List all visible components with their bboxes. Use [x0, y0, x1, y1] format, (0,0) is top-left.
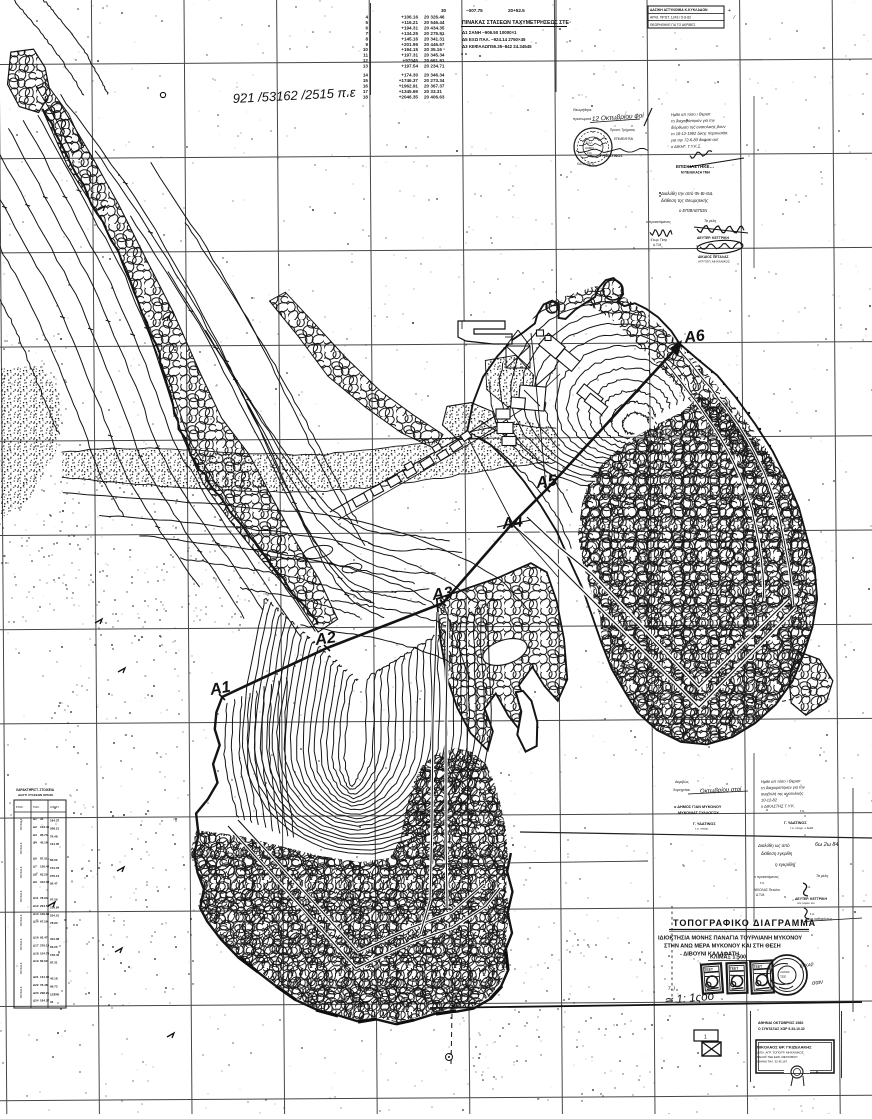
svg-text:ΑΘΗΝΑΙ ΟΚΤΩΒΡΙΟΣ 1982: ΑΘΗΝΑΙ ΟΚΤΩΒΡΙΟΣ 1982 [758, 1021, 803, 1025]
svg-text:12: 12 [363, 58, 369, 63]
svg-text:ΤΕΕΤ: ΤΕΕΤ [730, 966, 740, 970]
svg-text:+1746.37: +1746.37 [399, 78, 419, 83]
svg-text:ΣΤΗΝ ΑΝΩ ΜΕΡΑ ΜΥΚΟΝΟΥ ΚΑΙ: ΣΤΗΝ ΑΝΩ ΜΕΡΑ ΜΥΚΟΝΟΥ ΚΑΙ ΣΤΗ ΘΕΣΗ [664, 944, 781, 950]
svg-text:20 273.34: 20 273.34 [424, 78, 445, 83]
svg-text:ΤΕΕΤ: ΤΕΕΤ [753, 964, 763, 968]
svg-text:Δ6: Δ6 [33, 857, 37, 861]
svg-text:Δ16: Δ16 [33, 936, 39, 940]
svg-text:Τα μέλη: Τα μέλη [816, 874, 828, 878]
svg-text:ΕΛΛ: ΕΛΛ [586, 141, 593, 145]
svg-text:διόρθωση της ανατολικής βουν: διόρθωση της ανατολικής βουν [671, 124, 726, 130]
svg-text:34: 34 [40, 817, 44, 821]
svg-text:Μ ΠΕΛΕΚΑΣΗ ΤΜΗ: Μ ΠΕΛΕΚΑΣΗ ΤΜΗ [681, 171, 711, 175]
svg-text:διάθεση εγκρίθη: διάθεση εγκρίθη [761, 851, 793, 856]
svg-text:ΤΕΕ: ΤΕΕ [780, 975, 786, 979]
svg-text:ΟΡΙΑ Δ.Σ.: ΟΡΙΑ Δ.Σ. [19, 961, 23, 974]
svg-text:ΟΡΙΑ Δ.Σ.: ΟΡΙΑ Δ.Σ. [19, 841, 23, 854]
svg-text:20 661.91: 20 661.91 [424, 58, 445, 63]
svg-text:9: 9 [365, 42, 368, 47]
svg-text:ΔΙΚΑΙΟΣ ΠΕΤΑΛΑΣ: ΔΙΚΑΙΟΣ ΠΕΤΑΛΑΣ [698, 255, 729, 259]
svg-text:63.25: 63.25 [50, 945, 58, 949]
svg-text:87.31: 87.31 [50, 961, 58, 965]
svg-text:20+52.5: 20+52.5 [508, 8, 525, 13]
svg-text:τη διαχειρίστηκαν για την: τη διαχειρίστηκαν για την [671, 118, 715, 124]
svg-text:96.73: 96.73 [40, 833, 48, 837]
svg-text:20 434.35: 20 434.35 [424, 25, 445, 30]
svg-text:ΣΙΑ: ΣΙΑ [587, 151, 592, 155]
svg-text:15: 15 [363, 78, 369, 83]
svg-text:ο ΔΗΜΟΣ ΓΙΑΝ ΜΥΚΟΝΟΥ: ο ΔΗΜΟΣ ΓΙΑΝ ΜΥΚΟΝΟΥ [674, 805, 722, 809]
svg-text:16: 16 [363, 83, 369, 88]
svg-text:+2046.35: +2046.35 [399, 94, 419, 99]
svg-text:10: 10 [363, 47, 369, 52]
svg-text:34: 34 [50, 1000, 54, 1004]
svg-text:20 446.67: 20 446.67 [424, 42, 445, 47]
svg-text:Ο ΣΥΝΤΑΞΑΣ ΧΩΡ 5.33-10.32: Ο ΣΥΝΤΑΞΑΣ ΧΩΡ 5.33-10.32 [758, 1027, 805, 1031]
svg-text:ΕΠΙΜΕΛΗΤΑΙ: ΕΠΙΜΕΛΗΤΑΙ [614, 137, 633, 141]
svg-text:Τα μέλη: Τα μέλη [704, 219, 716, 223]
svg-text:78.93: 78.93 [50, 921, 58, 925]
svg-text:83.62: 83.62 [50, 858, 58, 862]
svg-text:96.73: 96.73 [50, 984, 58, 988]
svg-text:ο ΕΠΙΒΛΕΠΩΝ: ο ΕΠΙΒΛΕΠΩΝ [679, 208, 708, 213]
svg-text:ΕΠΙΣΚΙΑΣΤΗΚΕ…: ΕΠΙΣΚΙΑΣΤΗΚΕ… [676, 164, 715, 169]
svg-text:6: 6 [365, 25, 368, 30]
svg-text:Χορηγείται: Χορηγείται [673, 788, 690, 792]
svg-text:για την 72-6-83 δικάσει αυτ: για την 72-6-83 δικάσει αυτ [671, 137, 719, 143]
svg-text:ΔΑΣΙΚΗ ΑΣΤΥΝΟΜΙΑ Κ.ΚΥΚΛΑΔΩΝ: ΔΑΣΙΚΗ ΑΣΤΥΝΟΜΙΑ Κ.ΚΥΚΛΑΔΩΝ [650, 8, 708, 12]
svg-text:298.21: 298.21 [40, 991, 50, 995]
svg-text:ΔΙΑΓΡ. ΣΤΑΣΕΩΝ ΟΡΙΩΝ: ΔΙΑΓΡ. ΣΤΑΣΕΩΝ ΟΡΙΩΝ [18, 793, 53, 797]
svg-text:Ηρθε απ τόσο ι Θεμιστ: Ηρθε απ τόσο ι Θεμιστ [671, 111, 711, 117]
svg-text:τ.α. υπογρ.: τ.α. υπογρ. [695, 827, 709, 831]
svg-text:ΟΡΙΑ Δ.Σ.: ΟΡΙΑ Δ.Σ. [19, 889, 23, 902]
svg-text:20 341.31: 20 341.31 [424, 36, 445, 41]
svg-text:+201.95: +201.95 [401, 42, 418, 47]
svg-text:το 18-12-1982 δικης παρουσιάσ: το 18-12-1982 δικης παρουσιάσ. [671, 130, 729, 136]
svg-text:5: 5 [365, 20, 368, 25]
svg-text:Δ3 ΚΕΦΑΛΩΠ55.35−842 24.34545: Δ3 ΚΕΦΑΛΩΠ55.35−842 24.34545 [462, 44, 532, 49]
svg-text:ΑΡΙΘ. ΠΡΩΤ. 1243 / 5-6-82: ΑΡΙΘ. ΠΡΩΤ. 1243 / 5-6-82 [650, 16, 691, 20]
svg-text:A3: A3 [430, 584, 454, 604]
svg-text:+145.16: +145.16 [401, 36, 418, 41]
svg-text:A4: A4 [500, 513, 524, 533]
svg-text:156.42: 156.42 [40, 864, 50, 868]
svg-text:10-12-82: 10-12-82 [761, 797, 778, 802]
svg-text:αναβολή της ανατολικής: αναβολή της ανατολικής [761, 791, 804, 797]
svg-text:13: 13 [363, 64, 369, 69]
svg-text:ΜΥΚΟΝΙΑΤ ΣΥΛΛΟΓΟΥ: ΜΥΚΟΝΙΑΤ ΣΥΛΛΟΓΟΥ [678, 811, 719, 815]
svg-text:ΔΕΥΤΕΡ. ΚΕΤΤΡΙΚΗ: ΔΕΥΤΕΡ. ΚΕΤΤΡΙΚΗ [697, 236, 730, 240]
svg-text:τ.υ.: τ.υ. [800, 809, 805, 813]
svg-text:123.45: 123.45 [50, 992, 60, 996]
svg-text:4: 4 [365, 15, 368, 20]
svg-text:45.18: 45.18 [50, 977, 58, 981]
svg-text:Γ. ΥΔΑΤΙΝΟΣ: Γ. ΥΔΑΤΙΝΟΣ [784, 821, 807, 825]
svg-text:Διαλύθη ως από: Διαλύθη ως από [757, 843, 790, 848]
svg-text:ΝΙΚΟΛΑΣ Πεταλια: ΝΙΚΟΛΑΣ Πεταλια [754, 888, 780, 892]
svg-text:ΑΠΟΣΤ.: ΑΠΟΣΤ. [50, 805, 60, 809]
svg-text:63.25: 63.25 [40, 872, 48, 876]
svg-text:Δ3: Δ3 [33, 833, 37, 837]
svg-text:83.62: 83.62 [40, 959, 48, 963]
svg-text:Δ1 ΣΑΝΗ −906.50 10000: Δ1 ΣΑΝΗ −906.50 10000×1 [462, 30, 517, 35]
svg-text:ΙΔΙΟΚΤΗΣΙΑ ΜΟΝΗΣ ΠΑΝΑΓΙΑ ΤΟΥΡ: ΙΔΙΟΚΤΗΣΙΑ ΜΟΝΗΣ ΠΑΝΑΓΙΑ ΤΟΥΡΛΙΑΝΗ ΜΥΚΟΝ… [658, 936, 802, 942]
svg-text:20 346.34: 20 346.34 [424, 73, 445, 78]
svg-text:ο ΔΙΚΑΣΤΗΣ Τ.Υ.Κ.: ο ΔΙΚΑΣΤΗΣ Τ.Υ.Κ. [761, 803, 795, 809]
svg-text:ΔΙΠΛ. ΑΓΡ. ΤΟΠΟΓΡ. ΜΗΧΑΝΙΚΟΣ: ΔΙΠΛ. ΑΓΡ. ΤΟΠΟΓΡ. ΜΗΧΑΝΙΚΟΣ [757, 1051, 804, 1055]
svg-text:Δ13: Δ13 [33, 912, 39, 916]
svg-text:Δ18: Δ18 [33, 951, 39, 955]
svg-text:+197.31: +197.31 [401, 53, 418, 58]
svg-text:20 35.16: 20 35.16 [424, 47, 442, 52]
svg-text:Δ23: Δ23 [33, 991, 39, 995]
svg-text:διάθεση της Θεωρητικής: διάθεση της Θεωρητικής [661, 198, 709, 203]
svg-text:Δ2: Δ2 [33, 825, 37, 829]
svg-text:ΘΕΩΡΗΘΗΚΕ ΓΙΑ ΤΟ ΑΚΡΙΒΕΣ: ΘΕΩΡΗΘΗΚΕ ΓΙΑ ΤΟ ΑΚΡΙΒΕΣ [650, 23, 695, 27]
svg-text:Δ24: Δ24 [33, 999, 39, 1003]
svg-text:18: 18 [363, 94, 369, 99]
svg-text:ΜΕΛΟΣ ΤΕΕ ΕΘΝ. ΜΕΤΣΟΒΙΟΥ: ΜΕΛΟΣ ΤΕΕ ΕΘΝ. ΜΕΤΣΟΒΙΟΥ [757, 1055, 798, 1059]
svg-text:+1345.69: +1345.69 [399, 89, 419, 94]
svg-text:164.37: 164.37 [50, 819, 60, 823]
svg-text:Δ7: Δ7 [33, 864, 37, 868]
svg-text:−007.75: −007.75 [466, 8, 483, 13]
svg-text:14: 14 [363, 73, 369, 78]
svg-text:+134.25: +134.25 [401, 31, 418, 36]
svg-text:7. ): 7. ) [668, 985, 676, 992]
svg-text:8: 8 [365, 36, 368, 41]
svg-text:+116.21: +116.21 [402, 20, 419, 25]
svg-text:+194.15: +194.15 [401, 47, 418, 52]
svg-text:ΑΘΗΝΑ ΤΗΛ. 32.45.167: ΑΘΗΝΑ ΤΗΛ. 32.45.167 [757, 1060, 787, 1064]
svg-text:92.47: 92.47 [50, 882, 58, 886]
svg-text:Δ1: Δ1 [33, 817, 37, 821]
svg-text:67.29: 67.29 [40, 920, 48, 924]
svg-text:ΟΡΙΑ Δ.Σ.: ΟΡΙΑ Δ.Σ. [19, 913, 23, 926]
svg-text:ΧΑΡΑΚΤΗΡΙΣΤ. ΣΤΟΙΧΕΙΑ: ΧΑΡΑΚΤΗΡΙΣΤ. ΣΤΟΙΧΕΙΑ [16, 788, 55, 792]
svg-text:30: 30 [441, 8, 447, 13]
svg-text:312.08: 312.08 [50, 937, 60, 941]
svg-text:131.05: 131.05 [50, 842, 60, 846]
svg-text:234.51: 234.51 [50, 913, 60, 917]
svg-text:Δ21: Δ21 [33, 975, 39, 979]
svg-text:Διαλύθη την από Φι-Βι-ΘΔ.: Διαλύθη την από Φι-Βι-ΘΔ. [660, 191, 714, 196]
svg-text:ΑΔΡΕΣ: ΑΔΡΕΣ [780, 970, 790, 974]
svg-text:ο ΔΙΚΗΓ. Τ.Υ.Κ.Σ.: ο ΔΙΚΗΓ. Τ.Υ.Κ.Σ. [671, 143, 702, 149]
svg-text:87.31: 87.31 [40, 857, 48, 861]
svg-text:ΟΡΙΑ Δ.Σ.: ΟΡΙΑ Δ.Σ. [19, 937, 23, 950]
svg-text:ΝΙΚΟΛΑΟΣ ΘΡ. ΓΚΙΖΕΛΑΚΗΣ: ΝΙΚΟΛΑΟΣ ΘΡ. ΓΚΙΖΕΛΑΚΗΣ [757, 1045, 812, 1050]
svg-text:στο ταμείο του: στο ταμείο του [797, 901, 815, 905]
svg-text:η εγκρίθη[: η εγκρίθη[ [775, 862, 796, 867]
svg-text:76.48: 76.48 [40, 983, 48, 987]
svg-text:123.45: 123.45 [40, 825, 50, 829]
svg-text:Δ9: Δ9 [33, 880, 37, 884]
svg-text:312.08: 312.08 [40, 880, 50, 884]
svg-text:+106.16: +106.16 [401, 15, 418, 20]
svg-text:109.84: 109.84 [50, 905, 60, 909]
svg-text:Δ11: Δ11 [33, 896, 39, 900]
svg-text:Δ5 ΕΞΩ ΠΑΛ. −924.14 2750×4: Δ5 ΕΞΩ ΠΑΛ. −924.14 2750×45 [462, 37, 526, 42]
svg-text:A6: A6 [682, 327, 706, 347]
svg-text:78.93: 78.93 [40, 896, 48, 900]
svg-text:+1962.91: +1962.91 [399, 83, 419, 88]
svg-text:20 406.63: 20 406.63 [424, 94, 445, 99]
svg-text:109.84: 109.84 [40, 912, 50, 916]
svg-text:Προιστ. Τμήματος: Προιστ. Τμήματος [610, 128, 636, 132]
svg-text:20 367.37: 20 367.37 [424, 83, 445, 88]
svg-text:156.42: 156.42 [50, 953, 60, 957]
svg-text:ΟΡΙΑ Δ.Σ.: ΟΡΙΑ Δ.Σ. [19, 817, 23, 830]
svg-text:Δ14: Δ14 [33, 920, 39, 924]
svg-text:298.21: 298.21 [50, 826, 60, 830]
svg-text:20 345.34: 20 345.34 [424, 53, 445, 58]
svg-text:τ.υ.: τ.υ. [760, 881, 765, 885]
svg-text:ΓΩΝ.: ΓΩΝ. [33, 805, 40, 809]
svg-text:ΠΙΝΑΚΑΣ ΣΤΑΣΕΩΝ ΤΑΧΥΜΕΤΡΗΣΕΩ: ΠΙΝΑΚΑΣ ΣΤΑΣΕΩΝ ΤΑΧΥΜΕΤΡΗΣΕΩΣ ΣΤΕ [462, 20, 569, 26]
svg-text:+97045: +97045 [403, 58, 419, 63]
svg-text:Α.Τ.Μ.: Α.Τ.Μ. [756, 893, 765, 897]
svg-text:20 546.44: 20 546.44 [424, 20, 445, 25]
svg-text:ΣΤΑΣ.: ΣΤΑΣ. [16, 805, 24, 809]
svg-text:τη διαχειρίστηκαν για την: τη διαχειρίστηκαν για την [761, 784, 805, 790]
svg-text:45.18: 45.18 [40, 841, 48, 845]
svg-text:20 33.31: 20 33.31 [424, 89, 442, 94]
svg-text:Δ17: Δ17 [33, 943, 39, 947]
svg-text:Γ. ΥΔΑΤΙΝΟΣ: Γ. ΥΔΑΤΙΝΟΣ [600, 154, 623, 158]
svg-text:76.48: 76.48 [50, 834, 58, 838]
svg-text:Δ22: Δ22 [33, 983, 39, 987]
svg-text:+197.54: +197.54 [401, 64, 418, 69]
svg-text:Θεωρήθηκε: Θεωρήθηκε [573, 108, 592, 112]
svg-text:ΚΑΛΛΟΝΗΣ: ΚΑΛΛΟΝΗΣ [577, 162, 595, 166]
svg-text:+174.30: +174.30 [401, 73, 418, 78]
svg-text:154.78: 154.78 [50, 866, 60, 870]
svg-text:τ.υ.: τ.υ. [810, 912, 815, 916]
svg-text:A5: A5 [534, 472, 559, 492]
svg-text:Δ4: Δ4 [33, 841, 37, 845]
svg-text:+: + [728, 8, 731, 14]
svg-text:ΟΡΙΑ Δ.Σ.: ΟΡΙΑ Δ.Σ. [19, 865, 23, 878]
svg-text:20 275.91: 20 275.91 [424, 31, 445, 36]
svg-text:17: 17 [363, 89, 369, 94]
svg-text:164.37: 164.37 [40, 999, 50, 1003]
svg-text:ΑΓΡ.ΤΟΠ. ΜΗΧΑΝΙΚΟΣ: ΑΓΡ.ΤΟΠ. ΜΗΧΑΝΙΚΟΣ [698, 260, 730, 264]
svg-text:τ.α. υπογρ. ο ΔΗΜ.: τ.α. υπογρ. ο ΔΗΜ. [790, 826, 814, 830]
svg-text:131.05: 131.05 [40, 975, 50, 979]
svg-text:ΚΛΙΜΑΞ 1:500: ΚΛΙΜΑΞ 1:500 [710, 955, 746, 961]
svg-text:20 234.71: 20 234.71 [424, 64, 445, 69]
svg-text:Δ12: Δ12 [33, 904, 39, 908]
svg-text:Δ8: Δ8 [33, 872, 37, 876]
svg-text:11: 11 [363, 53, 368, 58]
svg-text:+194.31: +194.31 [401, 25, 418, 30]
svg-text:ΤΕΕΤ: ΤΕΕΤ [704, 967, 714, 972]
svg-text:Δ19: Δ19 [33, 959, 39, 963]
svg-text:276.13: 276.13 [50, 874, 60, 878]
svg-text:ο προιστάμενος: ο προιστάμενος [754, 875, 779, 879]
svg-text:7: 7 [365, 31, 368, 36]
svg-text:ΟΡΙΑ Δ.Σ.: ΟΡΙΑ Δ.Σ. [19, 985, 23, 998]
svg-text:1: 1 [704, 1035, 707, 1041]
svg-text:ο προιστάμενος: ο προιστάμενος [646, 220, 671, 224]
svg-text:Ακριβώς: Ακριβώς [675, 780, 689, 784]
svg-text:Α.Τ.Μ: Α.Τ.Μ [653, 243, 661, 247]
svg-text:Ηρθε απ τόσο ι Θεμιστ: Ηρθε απ τόσο ι Θεμιστ [761, 778, 801, 784]
svg-text:92.47: 92.47 [40, 936, 48, 940]
svg-text:20 326.46: 20 326.46 [424, 15, 445, 20]
svg-text:67.29: 67.29 [50, 898, 58, 902]
svg-text:Γ. ΥΔΑΤΙΝΟΣ: Γ. ΥΔΑΤΙΝΟΣ [693, 822, 716, 826]
svg-text:6ω 2ω 84: 6ω 2ω 84 [815, 842, 838, 848]
svg-text:προσωρινά: προσωρινά [573, 117, 591, 121]
svg-text:276.13: 276.13 [40, 943, 50, 947]
svg-text:154.78: 154.78 [40, 951, 50, 955]
svg-text:ΤΟΠΟΓΡΑΦΙΚΟ ΔΙΑΓΡΑΜΜΑ: ΤΟΠΟΓΡΑΦΙΚΟ ΔΙΑΓΡΑΜΜΑ [673, 918, 816, 928]
svg-text:A2: A2 [313, 629, 337, 649]
svg-text:Γεωρ. Πετρ: Γεωρ. Πετρ [651, 238, 667, 242]
